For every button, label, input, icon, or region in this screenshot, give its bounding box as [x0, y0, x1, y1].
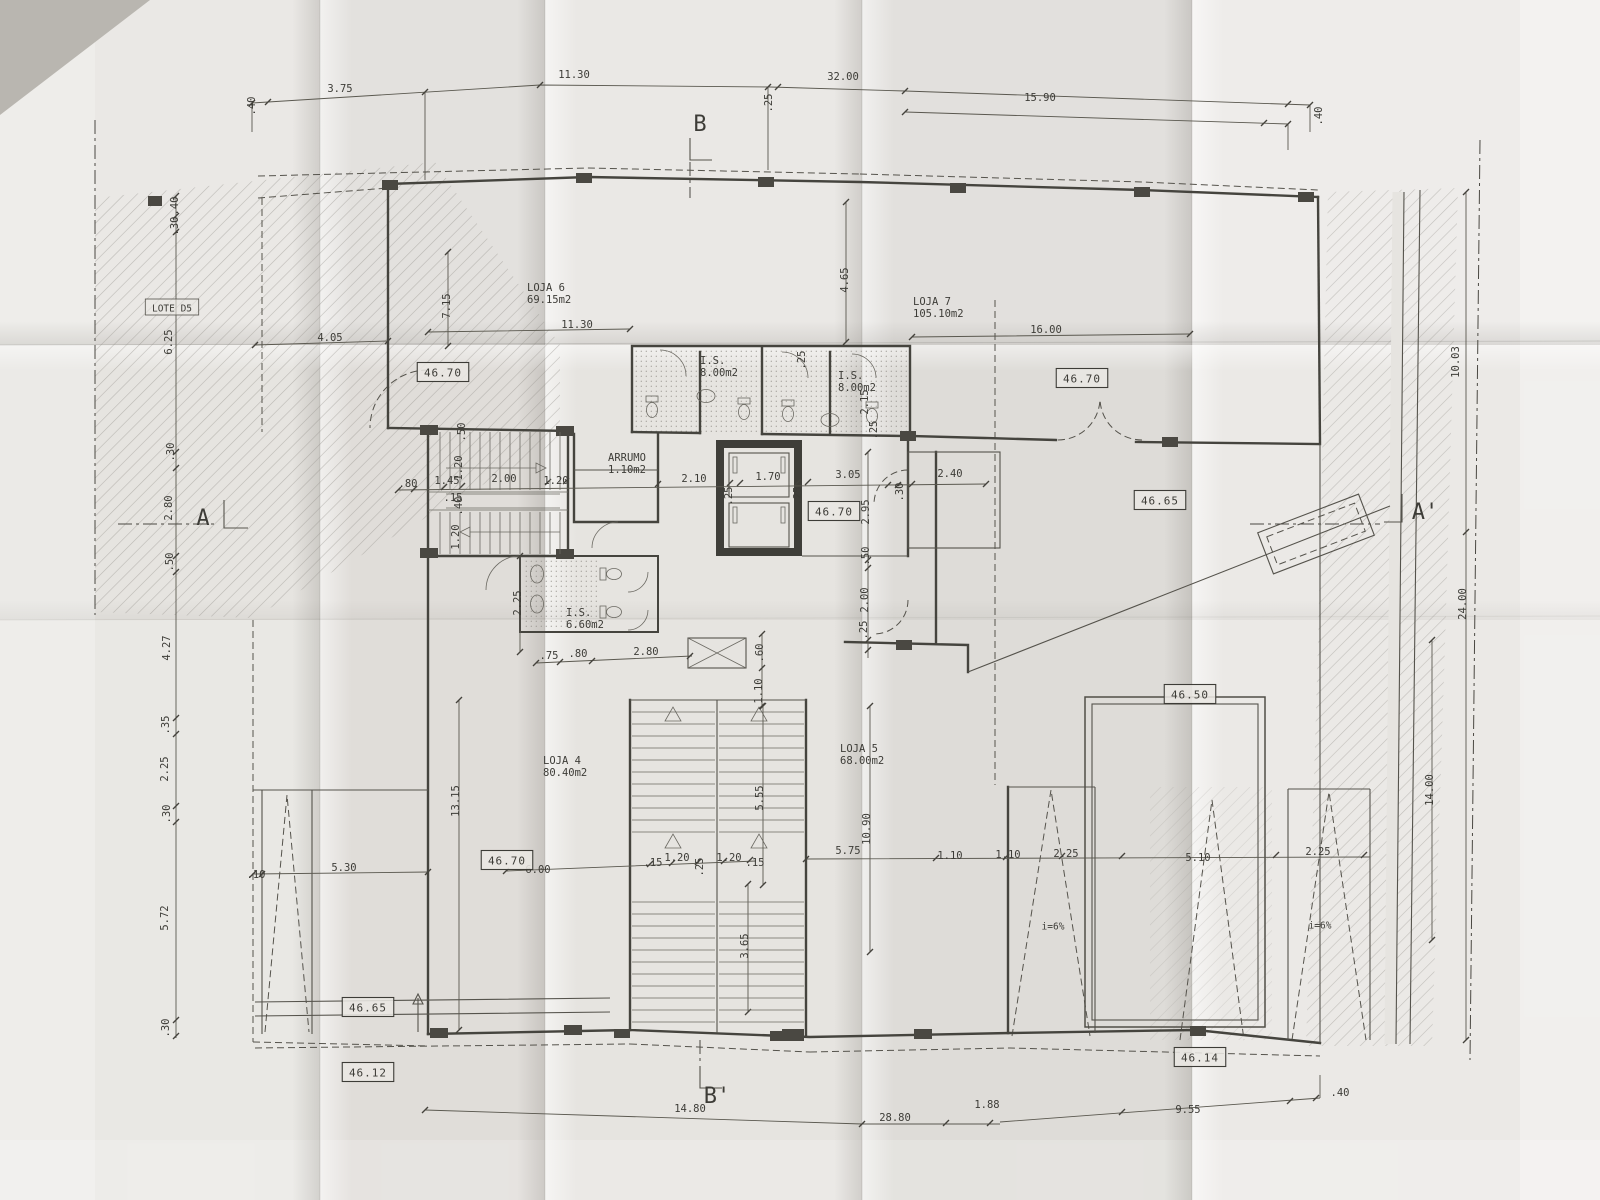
dimension-label: 1.10: [995, 849, 1020, 861]
dimension-label: .80: [399, 478, 418, 490]
section-marker-label: B: [693, 112, 706, 137]
photographed-floorplan: .403.7511.3032.00.2515.90.40.40.306.25.3…: [0, 0, 1600, 1200]
dimension-label: 3.75: [327, 83, 352, 95]
dimension-label: 14.00: [1424, 774, 1436, 806]
dimension-label: 3.65: [739, 933, 751, 958]
note-label: LOTE D5: [152, 304, 192, 315]
dimension-label: 11.30: [561, 319, 593, 331]
dimension-label: .40: [169, 197, 181, 216]
room-area-label: 68.00m2: [840, 755, 884, 767]
room-area-label: 1.10m2: [608, 464, 646, 476]
dimension-label: 3.05: [835, 469, 860, 481]
dimension-label: .40: [453, 497, 465, 516]
dimension-label: 28.80: [879, 1112, 911, 1124]
room-name-label: LOJA 4: [543, 755, 581, 767]
room-area-label: 105.10m2: [913, 308, 964, 320]
room-name-label: I.S.: [566, 607, 591, 619]
dimension-label: 9.55: [1175, 1104, 1200, 1116]
dimension-label: 2.00: [491, 473, 516, 485]
dimension-label: .15: [746, 857, 765, 869]
dimension-label: .50: [456, 423, 468, 442]
room-name-label: LOJA 6: [527, 282, 565, 294]
dimension-label: 4.27: [161, 635, 173, 660]
dimension-label: 2.80: [163, 495, 175, 520]
dimension-label: .40: [1331, 1087, 1350, 1099]
dimension-label: .40: [246, 97, 258, 116]
dimension-label: .50: [860, 547, 872, 566]
dimension-label: 2.25: [1053, 848, 1078, 860]
dimension-label: 14.80: [674, 1103, 706, 1115]
dimension-label: .25: [763, 94, 775, 113]
dimension-label: .25: [723, 487, 735, 506]
dimension-label: 2.00: [859, 587, 871, 612]
dimension-label: 4.05: [317, 332, 342, 344]
dimension-label: 5.75: [835, 845, 860, 857]
room-area-label: 80.40m2: [543, 767, 587, 779]
dimension-label: .25: [868, 421, 880, 440]
dimension-label: 1.20: [453, 455, 465, 480]
elevation-value: 46.70: [1063, 373, 1101, 386]
note-label: i=6%: [1042, 922, 1065, 933]
dimension-label: .15: [644, 857, 663, 869]
dimension-label: 2.40: [937, 468, 962, 480]
section-marker-label: A': [1412, 500, 1439, 525]
room-name-label: ARRUMO: [608, 452, 646, 464]
dimension-label: .35: [160, 716, 172, 735]
street-strip-hatch: [1306, 188, 1458, 1046]
dimension-label: .30: [165, 443, 177, 462]
dimension-label: .10: [247, 869, 266, 881]
dimension-label: 24.00: [1457, 588, 1469, 620]
dimension-label: 32.00: [827, 71, 859, 83]
dimension-label: 6.25: [163, 329, 175, 354]
dimension-label: 10.90: [861, 813, 873, 845]
elevation-value: 46.50: [1171, 689, 1209, 702]
dimension-label: 2.95: [860, 499, 872, 524]
section-marker-label: A: [196, 506, 209, 531]
room-name-label: I.S.: [700, 355, 725, 367]
dimension-label: 1.88: [974, 1099, 999, 1111]
dimension-label: 13.15: [450, 785, 462, 817]
elevation-value: 46.12: [349, 1067, 387, 1080]
dimension-label: 5.72: [159, 905, 171, 930]
dimension-label: .80: [569, 648, 588, 660]
dimension-label: 1.10: [937, 850, 962, 862]
room-area-label: 8.00m2: [838, 382, 876, 394]
dimension-label: 1.20: [543, 475, 568, 487]
dimension-label: .25: [792, 487, 804, 506]
dimension-label: .60: [754, 644, 766, 663]
dimension-label: 2.25: [512, 590, 524, 615]
elevation-value: 46.14: [1181, 1052, 1219, 1065]
room-name-label: LOJA 5: [840, 743, 878, 755]
elevation-value: 46.70: [424, 367, 462, 380]
dimension-label: 15.90: [1024, 92, 1056, 104]
dimension-label: .30: [161, 805, 173, 824]
dimension-label: 1.70: [755, 471, 780, 483]
dimension-label: 2.80: [633, 646, 658, 658]
elevation-value: 46.70: [488, 855, 526, 868]
dimension-label: 5.55: [754, 785, 766, 810]
dimension-label: .25: [694, 858, 706, 877]
floorplan-svg: .403.7511.3032.00.2515.90.40.40.306.25.3…: [0, 0, 1600, 1200]
dimension-label: .30: [160, 1019, 172, 1038]
dimension-label: .50: [164, 553, 176, 572]
dimension-label: 5.10: [1185, 852, 1210, 864]
dimension-label: .75: [540, 650, 559, 662]
note-label: i=6%: [1309, 921, 1332, 932]
dimension-label: 2.25: [1305, 846, 1330, 858]
dimension-label: .30: [169, 217, 181, 236]
dimension-label: 1.20: [716, 852, 741, 864]
room-name-label: LOJA 7: [913, 296, 951, 308]
dimension-label: .25: [858, 621, 870, 640]
dimension-label: 1.20: [450, 524, 462, 549]
dimension-label: 2.25: [159, 756, 171, 781]
elevation-value: 46.65: [349, 1002, 387, 1015]
dimension-label: 5.30: [331, 862, 356, 874]
room-area-label: 69.15m2: [527, 294, 571, 306]
section-marker-label: B': [704, 1084, 731, 1109]
dimension-label: 7.15: [441, 293, 453, 318]
dimension-label: 16.00: [1030, 324, 1062, 336]
dimension-label: 1.20: [664, 852, 689, 864]
room-area-label: 6.60m2: [566, 619, 604, 631]
room-area-label: 8.00m2: [700, 367, 738, 379]
dimension-label: .30: [894, 483, 906, 502]
dimension-label: .40: [1313, 107, 1325, 126]
dimension-label: .25: [796, 351, 808, 370]
room-name-label: I.S.: [838, 370, 863, 382]
ramp-side-hatch: [1150, 787, 1272, 1040]
dimension-label: 10.03: [1450, 346, 1462, 378]
dimension-label: 1.10: [753, 678, 765, 703]
elevation-value: 46.70: [815, 506, 853, 519]
dimension-label: 4.65: [839, 267, 851, 292]
elevation-value: 46.65: [1141, 495, 1179, 508]
dimension-label: 11.30: [558, 69, 590, 81]
dimension-label: 2.10: [681, 473, 706, 485]
